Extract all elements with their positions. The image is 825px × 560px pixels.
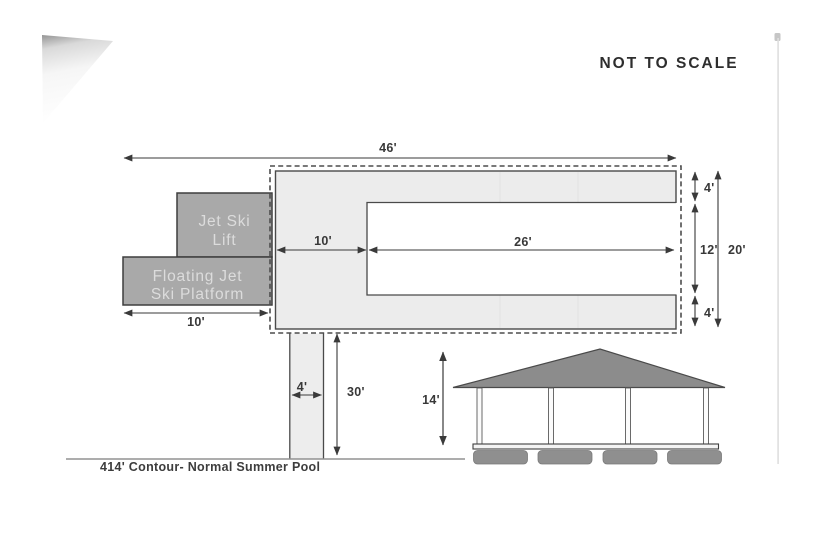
dim-platform-length: 10' bbox=[124, 313, 268, 329]
dim-slip-width: 12' bbox=[695, 204, 718, 293]
dim-finger-bottom: 4' bbox=[695, 296, 715, 326]
dock-site-plan-page: NOT TO SCALE 46' Jet Ski Lift Floating J… bbox=[0, 0, 825, 560]
boathouse-float bbox=[603, 451, 657, 465]
dim-finger-top: 4' bbox=[695, 172, 715, 201]
jet-ski-lift: Jet Ski Lift bbox=[177, 193, 272, 257]
dim-walkway-length-label: 30' bbox=[347, 385, 365, 399]
contour-label: 414' Contour- Normal Summer Pool bbox=[100, 460, 320, 474]
dim-dock-depth: 20' bbox=[718, 171, 746, 327]
dim-walkway-length: 30' bbox=[337, 334, 365, 455]
floating-jet-ski-platform: Floating Jet Ski Platform bbox=[123, 257, 272, 305]
boathouse-deck bbox=[473, 444, 719, 449]
walkway bbox=[290, 334, 324, 460]
dim-deck-to-slip-label: 10' bbox=[314, 234, 332, 248]
dim-platform-length-label: 10' bbox=[187, 315, 205, 329]
dim-boathouse-height: 14' bbox=[422, 352, 443, 445]
walkway-deck bbox=[290, 334, 324, 460]
scan-edge-line-artifact bbox=[777, 38, 779, 464]
boathouse-post bbox=[626, 388, 631, 445]
boathouse-float bbox=[538, 451, 592, 465]
scan-corner-fold-artifact bbox=[42, 35, 113, 123]
dim-slip-width-label: 12' bbox=[700, 243, 718, 257]
boathouse-post bbox=[549, 388, 554, 445]
floating-platform-label-line1: Floating Jet bbox=[153, 268, 243, 285]
dim-finger-top-label: 4' bbox=[704, 181, 715, 195]
dim-boathouse-height-label: 14' bbox=[422, 393, 440, 407]
dim-slip-length-label: 26' bbox=[514, 235, 532, 249]
boathouse-float bbox=[474, 451, 528, 465]
boathouse-roof bbox=[453, 349, 725, 388]
boathouse-post bbox=[704, 388, 709, 445]
boathouse-elevation bbox=[453, 349, 725, 464]
jet-ski-lift-label-line1: Jet Ski bbox=[198, 213, 250, 230]
not-to-scale-label: NOT TO SCALE bbox=[599, 55, 738, 72]
dim-walkway-width-label: 4' bbox=[297, 380, 308, 394]
dim-finger-bottom-label: 4' bbox=[704, 306, 715, 320]
floating-platform-label-line2: Ski Platform bbox=[151, 286, 244, 303]
jet-ski-lift-label-line2: Lift bbox=[213, 232, 237, 249]
dim-dock-depth-label: 20' bbox=[728, 243, 746, 257]
dim-overall-width-label: 46' bbox=[379, 141, 397, 155]
dock-plan-drawing: NOT TO SCALE 46' Jet Ski Lift Floating J… bbox=[0, 0, 825, 560]
dim-overall-width: 46' bbox=[124, 141, 676, 158]
boathouse-float bbox=[668, 451, 722, 465]
boathouse-post bbox=[477, 388, 482, 445]
